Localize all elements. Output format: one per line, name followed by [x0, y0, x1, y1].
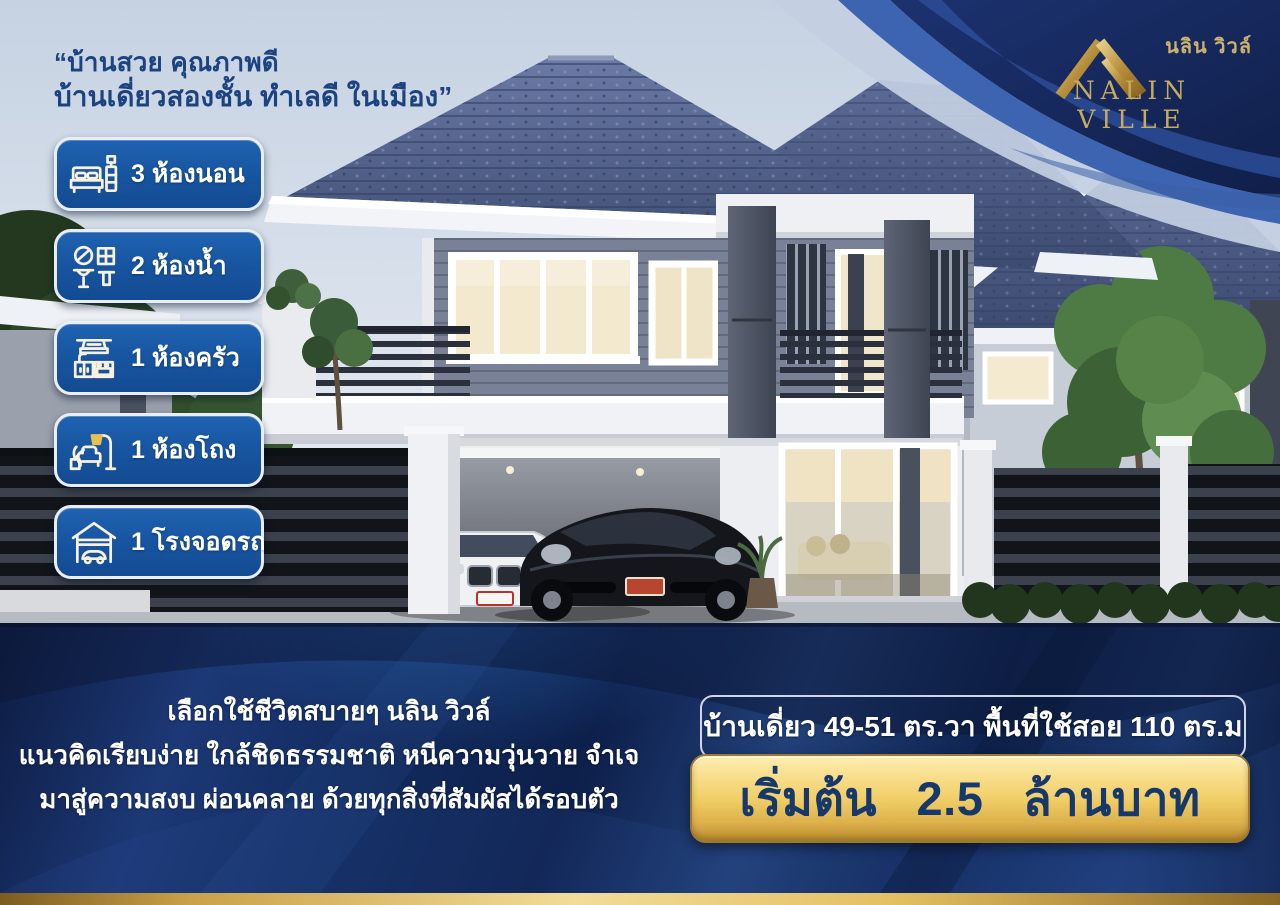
price-banner: เริ่มต้น 2.5 ล้านบาท	[690, 754, 1250, 843]
brand-name-thai: นลิน วิวล์	[1165, 30, 1252, 62]
brand-logo: นลิน วิวล์ NALIN VILLE	[1006, 18, 1258, 134]
quote-line-1: “บ้านสวย คุณภาพดี	[54, 46, 452, 79]
quote-line-2: บ้านเดี่ยวสองชั้น ทำเลดี ในเมือง”	[54, 79, 452, 114]
flyer: “บ้านสวย คุณภาพดี บ้านเดี่ยวสองชั้น ทำเล…	[0, 0, 1280, 905]
spec-box: บ้านเดี่ยว 49-51 ตร.วา พื้นที่ใช้สอย 110…	[700, 695, 1246, 759]
gate-pillar	[404, 426, 464, 614]
spec-line: บ้านเดี่ยว 49-51 ตร.วา พื้นที่ใช้สอย 110…	[703, 705, 1242, 749]
bottom-band: เลือกใช้ชีวิตสบายๆ นลิน วิวล์ แนวคิดเรีย…	[0, 623, 1280, 893]
feature-label: 3 ห้องนอน	[131, 154, 245, 194]
feature-label: 1 ห้องครัว	[131, 338, 240, 378]
feature-badge-living-room: 1 ห้องโถง	[54, 413, 264, 487]
feature-label: 1 ห้องโถง	[131, 430, 236, 470]
feature-badge-kitchen: 1 ห้องครัว	[54, 321, 264, 395]
glass-doors	[782, 446, 954, 606]
brand-name-latin: NALIN VILLE	[1006, 76, 1258, 134]
gold-footer-strip	[0, 893, 1280, 905]
feature-label: 2 ห้องน้ำ	[131, 246, 227, 286]
feature-badge-bathrooms: 2 ห้องน้ำ	[54, 229, 264, 303]
description-line-1: เลือกใช้ชีวิตสบายๆ นลิน วิวล์	[18, 689, 640, 733]
kitchen-icon	[69, 333, 119, 383]
living-room-icon	[69, 425, 119, 475]
project-description: เลือกใช้ชีวิตสบายๆ นลิน วิวล์ แนวคิดเรีย…	[18, 689, 640, 821]
feature-label: 1 โรงจอดรถ	[131, 522, 265, 562]
upper-window	[652, 264, 716, 362]
description-line-3: มาสู่ความสงบ ผ่อนคลาย ด้วยทุกสิ่งที่สัมผ…	[18, 777, 640, 821]
description-line-2: แนวคิดเรียบง่าย ใกล้ชิดธรรมชาติ หนีความว…	[18, 733, 640, 777]
garage-icon	[69, 517, 119, 567]
headline-quote: “บ้านสวย คุณภาพดี บ้านเดี่ยวสองชั้น ทำเล…	[54, 46, 452, 114]
feature-badge-bedrooms: 3 ห้องนอน	[54, 137, 264, 211]
lit-window	[985, 354, 1051, 402]
bed-icon	[69, 149, 119, 199]
upper-window	[446, 256, 640, 364]
bathroom-icon	[69, 241, 119, 291]
balcony-railing	[780, 334, 962, 398]
price-text: เริ่มต้น 2.5 ล้านบาท	[740, 761, 1201, 836]
feature-badge-garage: 1 โรงจอดรถ	[54, 505, 264, 579]
